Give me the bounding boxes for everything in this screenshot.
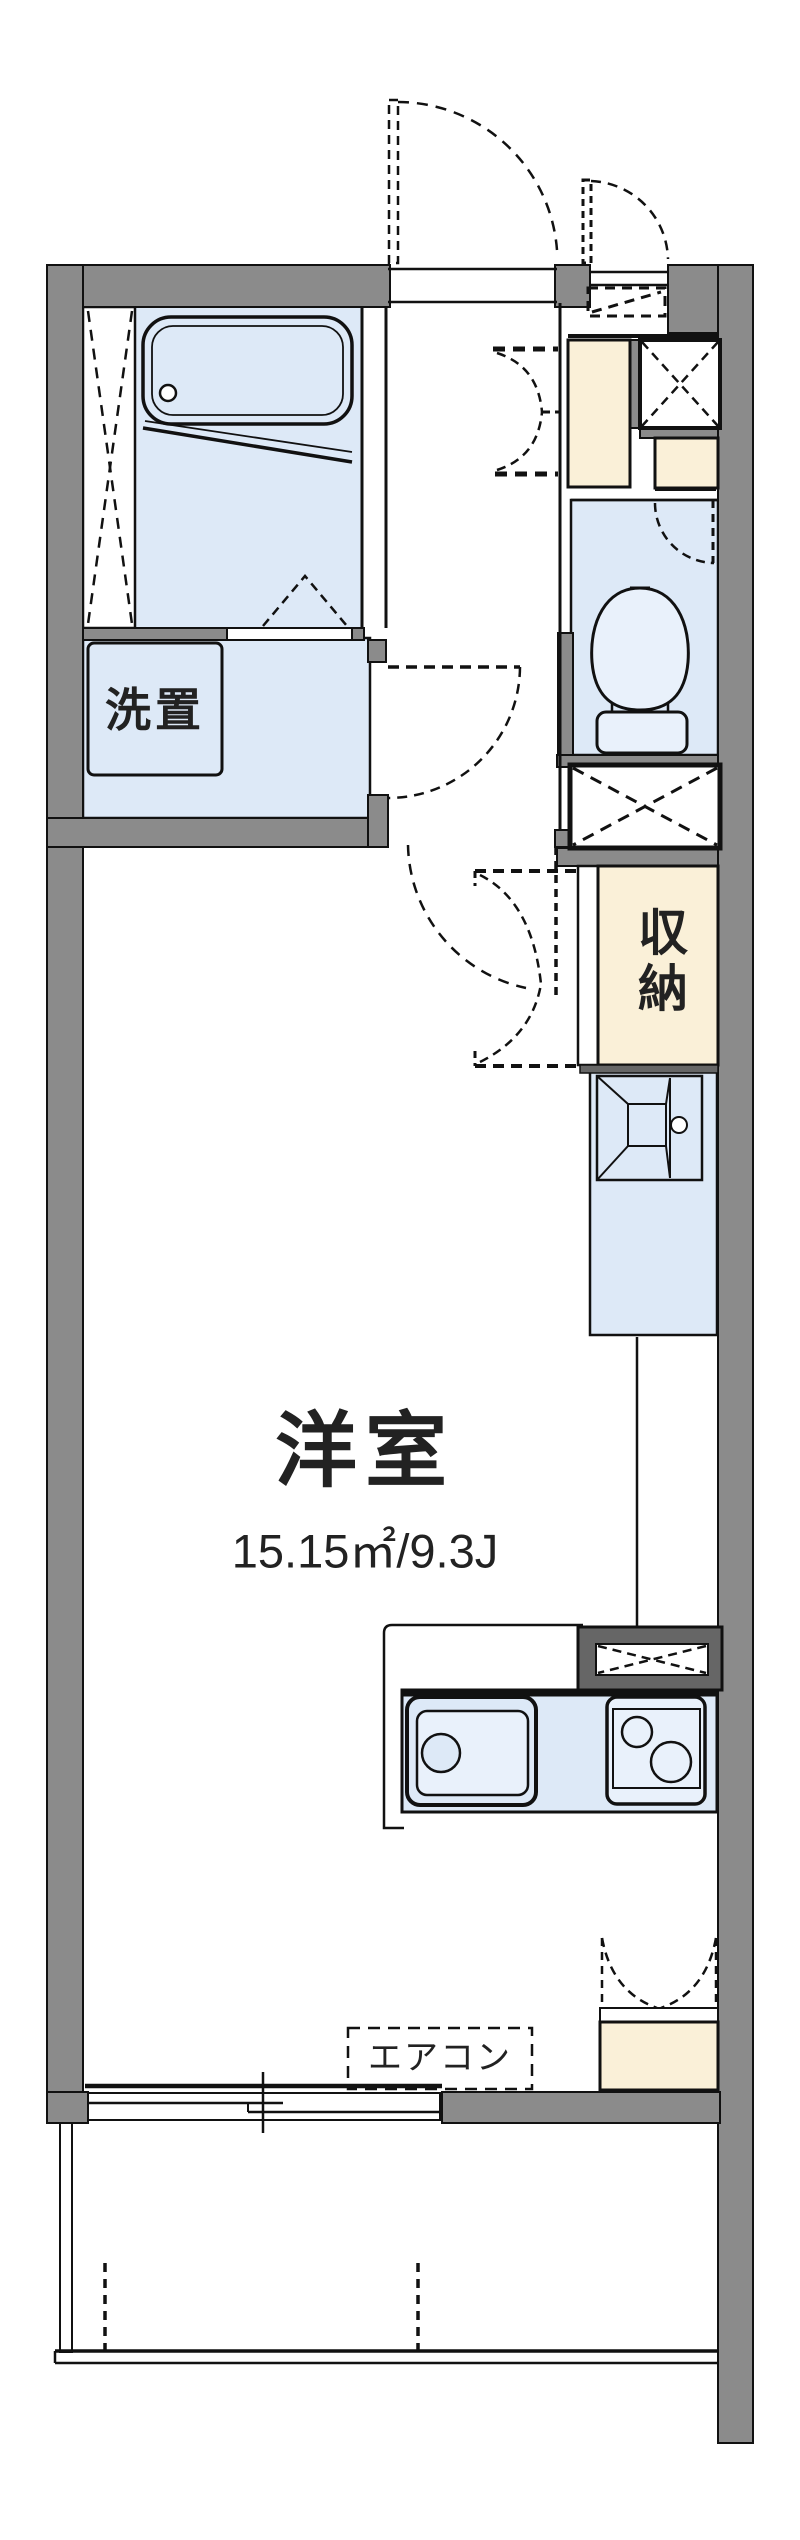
- living-room-door-icon: [408, 845, 556, 995]
- living-room-area-label: 15.15㎡/9.3J: [232, 1528, 499, 1575]
- door-thresholds: [388, 269, 668, 302]
- cabinet-doors-icon: [602, 1938, 716, 2008]
- floor-plan-drawing: [0, 0, 800, 2540]
- corridor-door-icon: [389, 100, 557, 263]
- pipe-space-icon: [640, 340, 720, 428]
- shoe-cabinet: [568, 340, 630, 487]
- washroom-door-icon: [388, 667, 520, 798]
- laundry-label: 洗置: [105, 687, 205, 733]
- kitchen-sink-icon: [407, 1697, 536, 1805]
- counter-duct-icon: [578, 1627, 722, 1690]
- genkan-step-icon: [588, 288, 665, 316]
- balcony: [55, 2123, 718, 2363]
- bottom-cabinet: [600, 2008, 718, 2090]
- entrance-cabinet: [655, 438, 718, 488]
- storage-label: 収納: [634, 906, 684, 1018]
- duct-space-icon: [570, 765, 720, 848]
- floor-plan: 洗置 収納 洋室 15.15㎡/9.3J エアコン: [0, 0, 800, 2540]
- stove-icon: [607, 1697, 705, 1804]
- living-room-label: 洋室: [275, 1411, 455, 1493]
- toilet-icon: [592, 588, 689, 753]
- aircon-label: エアコン: [368, 2041, 512, 2075]
- bath-opening: [227, 628, 352, 640]
- shoe-cabinet-doors-icon: [493, 349, 560, 474]
- storage-doors-icon: [475, 871, 578, 1066]
- front-door-icon: [583, 180, 668, 263]
